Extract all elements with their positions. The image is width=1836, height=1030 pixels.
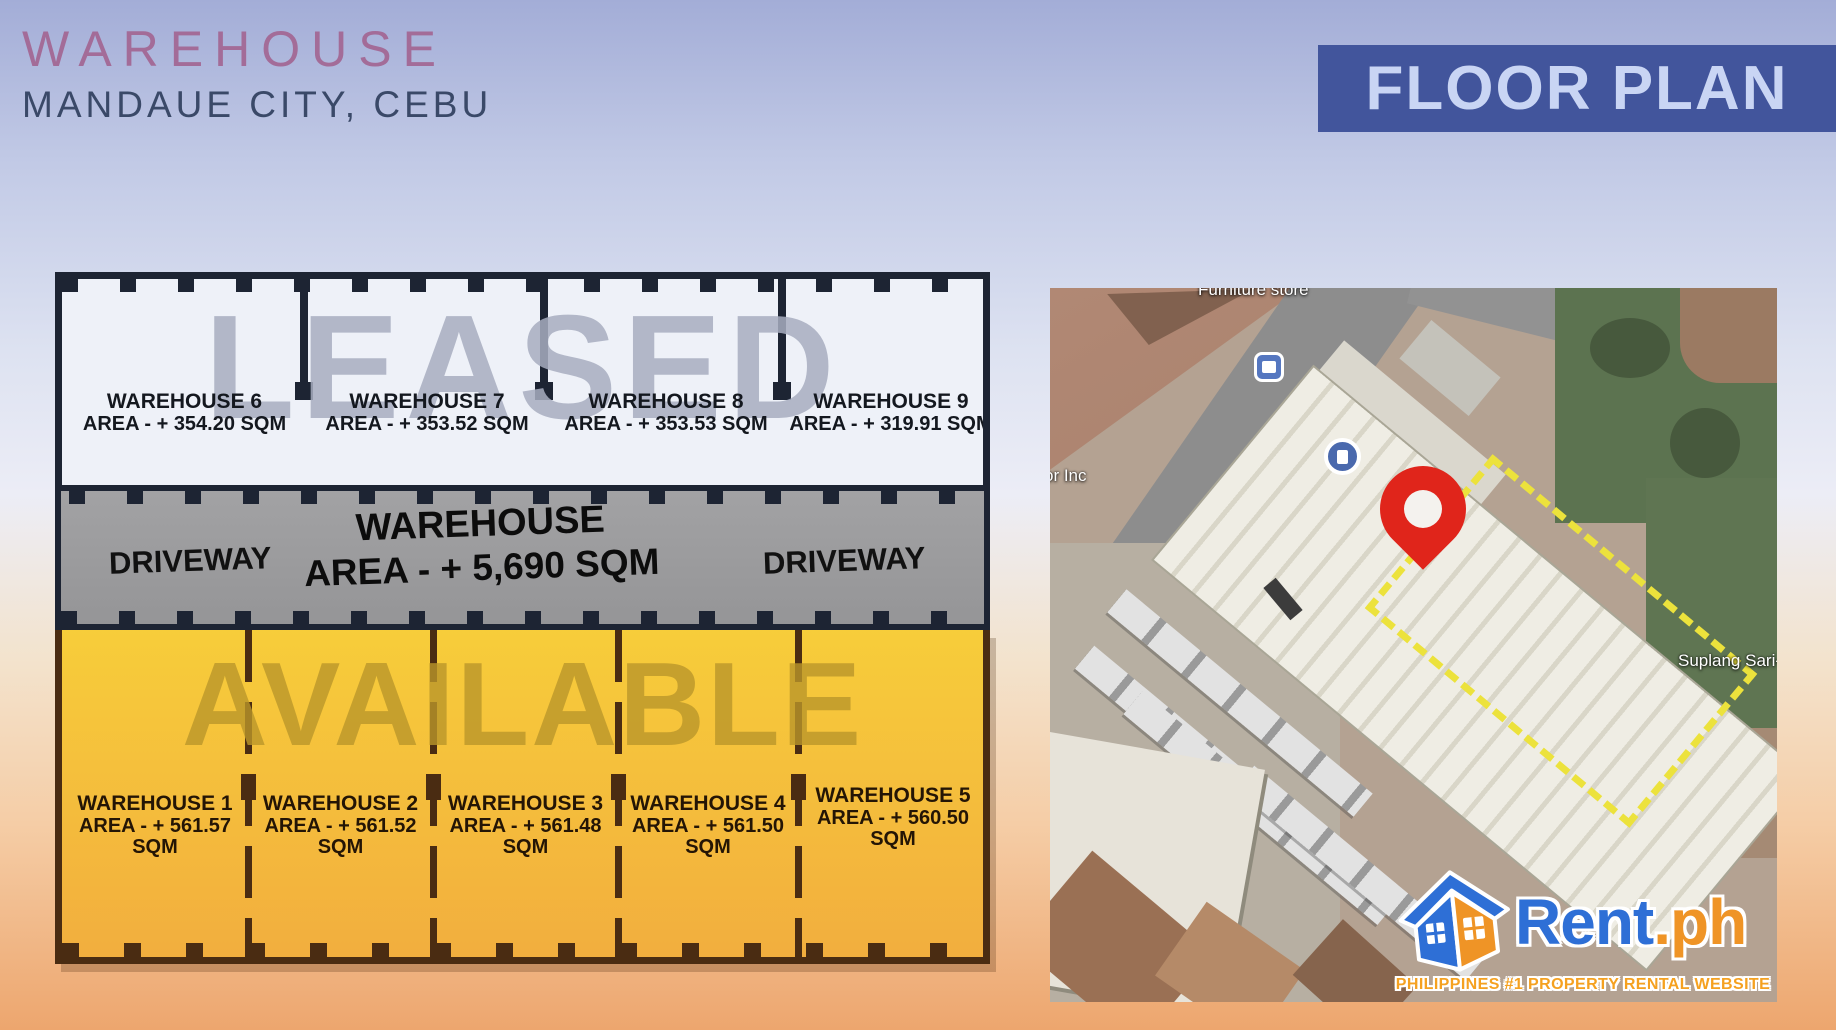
unit-area: AREA - + 561.52 SQM [248, 816, 433, 859]
flyer-page: WAREHOUSE MANDAUE CITY, CEBU FLOOR PLAN … [0, 0, 1836, 1030]
unit-area: AREA - + 353.52 SQM [307, 414, 547, 436]
unit-warehouse-3: WAREHOUSE 3 AREA - + 561.48 SQM [433, 793, 618, 859]
satellite-map: Furniture store or Inc Suplang Sari-S [1050, 288, 1777, 1002]
unit-warehouse-2: WAREHOUSE 2 AREA - + 561.52 SQM [248, 793, 433, 859]
driveway-label-right: DRIVEWAY [762, 540, 926, 582]
unit-name: WAREHOUSE 1 [62, 793, 248, 816]
unit-area: AREA - + 354.20 SQM [62, 414, 307, 436]
unit-warehouse-1: WAREHOUSE 1 AREA - + 561.57 SQM [62, 793, 248, 859]
page-subtitle: MANDAUE CITY, CEBU [22, 84, 492, 126]
map-label-furniture-store: Furniture store [1198, 288, 1309, 300]
driveway-band: DRIVEWAY WAREHOUSE AREA - + 5,690 SQM DR… [55, 485, 990, 630]
unit-warehouse-9: WAREHOUSE 9 AREA - + 319.91 SQM [785, 391, 990, 435]
unit-area: AREA - + 561.50 SQM [618, 816, 798, 859]
bus-glyph [1262, 361, 1276, 373]
map-dirt-patch [1680, 288, 1777, 383]
wall-columns [61, 611, 984, 624]
brand-rent: Rent [1515, 886, 1653, 958]
leased-section: LEASED WAREHOUSE 6 AREA - + 354.20 SQM W… [55, 272, 990, 485]
unit-name: WAREHOUSE 8 [547, 391, 785, 414]
brand-ph: .ph [1653, 886, 1746, 958]
rentph-house-icon [1394, 864, 1516, 979]
floor-plan-banner: FLOOR PLAN [1318, 45, 1836, 132]
unit-name: WAREHOUSE 6 [62, 391, 307, 414]
map-tree [1590, 318, 1670, 378]
floor-plan-banner-label: FLOOR PLAN [1366, 53, 1789, 124]
gas-station-icon [1324, 438, 1361, 475]
map-tree [1670, 408, 1740, 478]
unit-warehouse-8: WAREHOUSE 8 AREA - + 353.53 SQM [547, 391, 785, 435]
floor-plan-diagram: LEASED WAREHOUSE 6 AREA - + 354.20 SQM W… [55, 272, 990, 964]
bus-stop-icon [1254, 352, 1284, 382]
map-label-sari-store: Suplang Sari-S [1678, 651, 1777, 671]
unit-name: WAREHOUSE 5 [798, 785, 988, 808]
unit-name: WAREHOUSE 2 [248, 793, 433, 816]
unit-name: WAREHOUSE 3 [433, 793, 618, 816]
unit-warehouse-6: WAREHOUSE 6 AREA - + 354.20 SQM [62, 391, 307, 435]
unit-name: WAREHOUSE 4 [618, 793, 798, 816]
page-title: WAREHOUSE [22, 20, 447, 78]
unit-name: WAREHOUSE 7 [307, 391, 547, 414]
unit-name: WAREHOUSE 9 [785, 391, 990, 414]
unit-area: AREA - + 353.53 SQM [547, 414, 785, 436]
unit-warehouse-7: WAREHOUSE 7 AREA - + 353.52 SQM [307, 391, 547, 435]
rentph-tagline: PHILIPPINES #1 PROPERTY RENTAL WEBSITE [1393, 976, 1773, 994]
map-label-or-inc: or Inc [1050, 466, 1087, 486]
wall-columns-bottom [62, 943, 983, 957]
rentph-logo: Rent.ph PHILIPPINES #1 PROPERTY RENTAL W… [1393, 870, 1773, 994]
central-warehouse-label: WAREHOUSE AREA - + 5,690 SQM [290, 496, 673, 595]
available-watermark: AVAILABLE [62, 636, 983, 773]
unit-area: AREA - + 561.57 SQM [62, 816, 248, 859]
unit-warehouse-5: WAREHOUSE 5 AREA - + 560.50 SQM [798, 785, 988, 851]
available-section: AVAILABLE WAREHOUSE 1 AREA - + 561.57 SQ… [55, 630, 990, 964]
unit-warehouse-4: WAREHOUSE 4 AREA - + 561.50 SQM [618, 793, 798, 859]
unit-area: AREA - + 561.48 SQM [433, 816, 618, 859]
unit-area: AREA - + 319.91 SQM [785, 414, 990, 436]
fuel-pump-glyph [1337, 450, 1348, 464]
driveway-label-left: DRIVEWAY [108, 540, 272, 582]
unit-area: AREA - + 560.50 SQM [798, 808, 988, 851]
